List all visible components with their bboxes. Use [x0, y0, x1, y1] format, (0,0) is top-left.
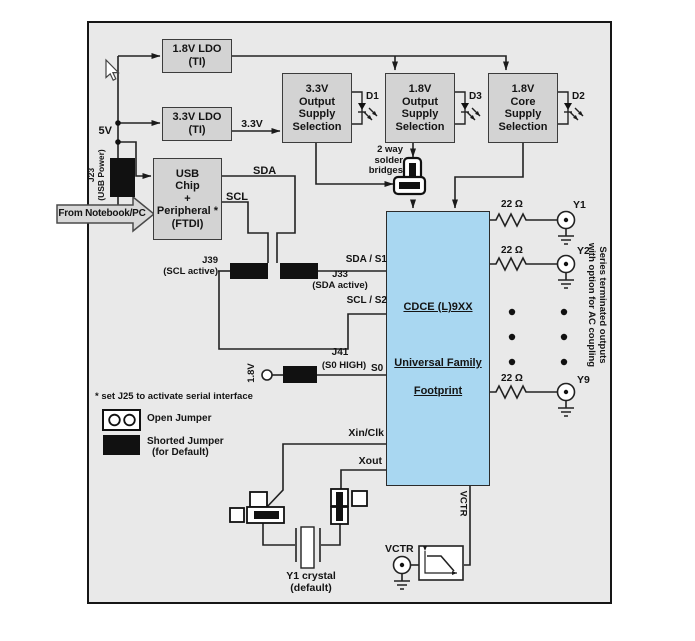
block-diagram: 1.8V LDO (TI) 3.3V LDO (TI) 3.3V Output …	[0, 0, 695, 641]
j41-jumper	[283, 366, 317, 383]
lowpass-filter-icon	[419, 546, 463, 580]
junction-dot	[115, 139, 121, 145]
led-d3-label: D3	[469, 91, 482, 102]
j33-label: J33 (SDA active)	[305, 270, 375, 291]
v18-pin-icon	[262, 370, 272, 380]
xin-label: Xin/Clk	[310, 428, 384, 440]
xout-label: Xout	[310, 456, 382, 468]
resistor-y1-label: 22 Ω	[494, 199, 530, 210]
led-d2-label: D2	[572, 91, 585, 102]
resistor-y2-label: 22 Ω	[494, 245, 530, 256]
usb-chip-box: USB Chip + Peripheral * (FTDI)	[153, 158, 222, 240]
open-jumper-icon	[103, 410, 140, 430]
v18-net-label: 1.8V	[246, 358, 258, 388]
supply-sel-3v3-box: 3.3V Output Supply Selection	[282, 73, 352, 143]
ldo-1v8-box: 1.8V LDO (TI)	[162, 39, 232, 73]
junction-dot	[115, 120, 121, 126]
j23-jumper	[110, 158, 135, 197]
ldo-3v3-box: 3.3V LDO (TI)	[162, 107, 232, 141]
j41-sub-label: (S0 HIGH)	[318, 361, 370, 372]
sda-label: SDA	[253, 165, 276, 177]
open-jumper-label: Open Jumper	[147, 413, 211, 424]
supply-sel-1v8-output-box: 1.8V Output Supply Selection	[385, 73, 455, 143]
chip-footprint: Footprint	[387, 385, 489, 397]
crystal-label: Y1 crystal (default)	[275, 571, 347, 594]
serial-note-label: * set J25 to activate serial interface	[95, 392, 253, 403]
scl-label: SCL	[226, 191, 248, 203]
y9-label: Y9	[577, 375, 590, 387]
vctr-connector-label: VCTR	[385, 544, 414, 556]
series-note-label: Series terminated outputs with option fo…	[584, 238, 610, 372]
solder-bridges-label: 2 way solder bridges	[352, 145, 403, 177]
shorted-jumper-sub-label: (for Default)	[152, 447, 209, 458]
j41-label: J41	[311, 347, 369, 358]
cdce-chip-box: CDCE (L)9XX Universal Family Footprint	[386, 211, 490, 486]
supply-sel-1v8-core-box: 1.8V Core Supply Selection	[488, 73, 558, 143]
led-d1-label: D1	[366, 91, 379, 102]
scl-s2-label: SCL / S2	[317, 295, 387, 306]
j39-label: J39 (SCL active)	[140, 256, 218, 277]
vctr-pin-label: VCTR	[456, 487, 469, 521]
chip-name: CDCE (L)9XX	[387, 301, 489, 313]
net-3v3-label: 3.3V	[232, 119, 272, 131]
shorted-jumper-icon	[103, 435, 140, 455]
y1-label: Y1	[573, 200, 586, 212]
chip-family: Universal Family	[387, 357, 489, 369]
resistor-y9-label: 22 Ω	[494, 373, 530, 384]
net-5v-label: 5V	[86, 125, 112, 137]
j39-jumper	[230, 263, 268, 279]
sda-s1-label: SDA / S1	[317, 254, 387, 265]
from-notebook-label: From Notebook/PC	[58, 208, 146, 219]
j23-label: J23 (USB Power)	[85, 146, 107, 204]
shorted-jumper-label: Shorted Jumper	[147, 436, 224, 447]
s0-label: S0	[371, 363, 383, 374]
